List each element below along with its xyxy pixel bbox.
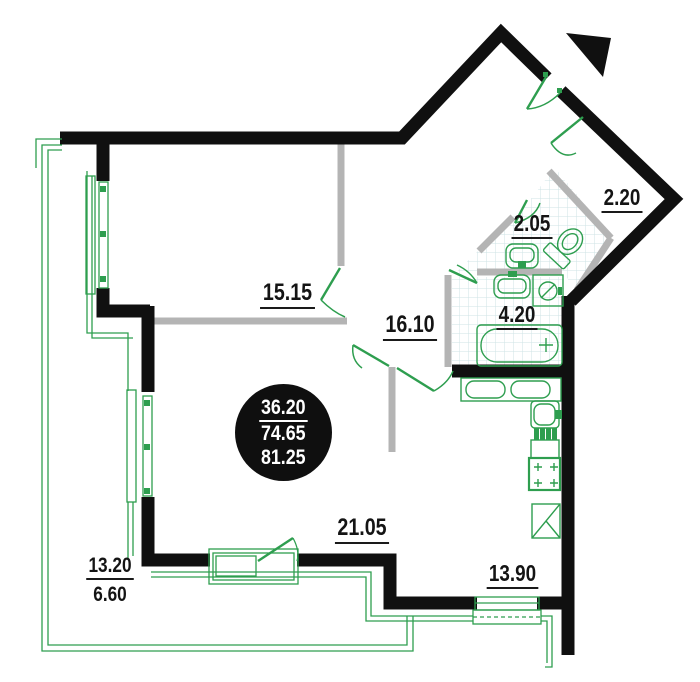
- room-label-13-90: 13.90: [474, 562, 552, 589]
- room-label-2-20: 2.20: [589, 186, 655, 213]
- window-upper-left-icon: [86, 176, 108, 294]
- living-area-value: 36.20: [259, 396, 307, 423]
- dish-rack-icon: [534, 428, 557, 440]
- window-lower-left-icon: [127, 390, 152, 502]
- kitchen-window-icon: [473, 597, 541, 624]
- room-label-4-20: 4.20: [484, 303, 550, 330]
- room-label-2-05: 2.05: [499, 212, 565, 239]
- kitchen-sink-icon: [531, 401, 562, 428]
- closet-door-icon: [551, 117, 583, 155]
- balcony-area-label: 13.20 6.60: [77, 555, 143, 605]
- floor-plan: 15.15 16.10 2.05 2.20 4.20 21.05 13.90 1…: [0, 0, 700, 682]
- usable-area-value: 74.65: [261, 422, 306, 446]
- cabinet-icon: [531, 440, 559, 458]
- lower-cabinet-icon: [532, 504, 560, 538]
- entrance-arrow-icon: [566, 33, 611, 77]
- kitchen-counter-icon: [461, 378, 561, 401]
- living-door-icon: [353, 345, 389, 368]
- room-label-16-10: 16.10: [373, 313, 447, 341]
- exterior-walls: [60, 33, 674, 655]
- room-label-21-05: 21.05: [321, 516, 403, 544]
- stove-icon: [529, 458, 560, 490]
- room-label-15-15: 15.15: [249, 281, 327, 309]
- area-summary-badge: 36.20 74.65 81.25: [235, 384, 332, 481]
- total-area-value: 81.25: [261, 446, 306, 470]
- entrance-door-icon: [527, 72, 562, 109]
- kitchen-door-icon: [397, 368, 453, 391]
- kitchen-fixtures: [461, 378, 562, 538]
